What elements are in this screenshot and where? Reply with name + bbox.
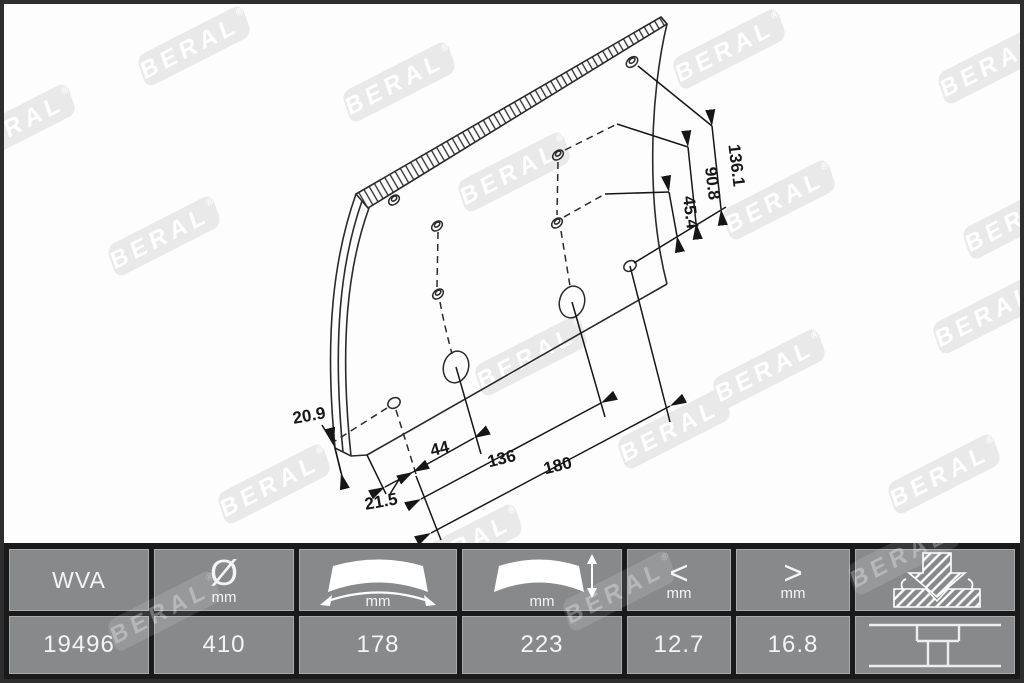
max-unit: mm bbox=[781, 586, 806, 601]
header-max: > mm bbox=[736, 549, 850, 611]
dashed-lines bbox=[335, 124, 617, 474]
header-width: mm bbox=[299, 549, 457, 611]
rivet-hole bbox=[430, 219, 445, 233]
value-max: 16.8 bbox=[736, 616, 850, 674]
max-value: 16.8 bbox=[768, 631, 819, 659]
diameter-value: 410 bbox=[202, 631, 245, 659]
width-value: 178 bbox=[356, 631, 399, 659]
rivet-section-icon bbox=[865, 617, 1005, 673]
thickness-value: 223 bbox=[520, 631, 563, 659]
dim-label-136-1: 136.1 bbox=[724, 143, 748, 188]
dim-label-20-9: 20.9 bbox=[291, 403, 327, 427]
value-mounting bbox=[855, 616, 1015, 674]
wva-label: WVA bbox=[52, 567, 106, 594]
rivet-hole bbox=[386, 395, 402, 410]
wva-value: 19496 bbox=[43, 631, 115, 659]
greater-than-symbol: > bbox=[783, 560, 802, 586]
value-min: 12.7 bbox=[627, 616, 731, 674]
spec-table: WVA Ø mm mm mm < mm bbox=[4, 543, 1020, 679]
dim-label-21-5: 21.5 bbox=[363, 489, 399, 513]
rivet-hole bbox=[624, 54, 640, 69]
width-unit: mm bbox=[366, 594, 391, 609]
brake-lining-drawing: 20.9 21.5 44 136 180 136.1 90.8 45.4 bbox=[4, 4, 1020, 543]
dim-label-180: 180 bbox=[542, 453, 574, 478]
min-unit: mm bbox=[667, 586, 692, 601]
rivet-hole bbox=[431, 287, 446, 301]
value-width: 178 bbox=[299, 616, 457, 674]
dim-label-136: 136 bbox=[486, 446, 518, 471]
hatched-edge bbox=[356, 17, 667, 208]
value-thickness: 223 bbox=[462, 616, 622, 674]
dim-label-44: 44 bbox=[428, 437, 451, 460]
lining-outline bbox=[331, 17, 667, 456]
min-value: 12.7 bbox=[654, 631, 705, 659]
dim-label-90-8: 90.8 bbox=[701, 166, 724, 201]
rivet-hole bbox=[551, 148, 566, 162]
dim-label-45-4: 45.4 bbox=[679, 195, 702, 231]
extension-lines bbox=[322, 66, 726, 540]
header-wva: WVA bbox=[9, 549, 149, 611]
technical-drawing-area: BERAL®BERAL®BERAL®BERAL®BERAL®BERAL®BERA… bbox=[4, 4, 1020, 543]
rivet-hole bbox=[550, 216, 565, 230]
value-diameter: 410 bbox=[154, 616, 294, 674]
thickness-unit: mm bbox=[530, 594, 555, 609]
catalog-image: BERAL®BERAL®BERAL®BERAL®BERAL®BERAL®BERA… bbox=[0, 0, 1024, 683]
